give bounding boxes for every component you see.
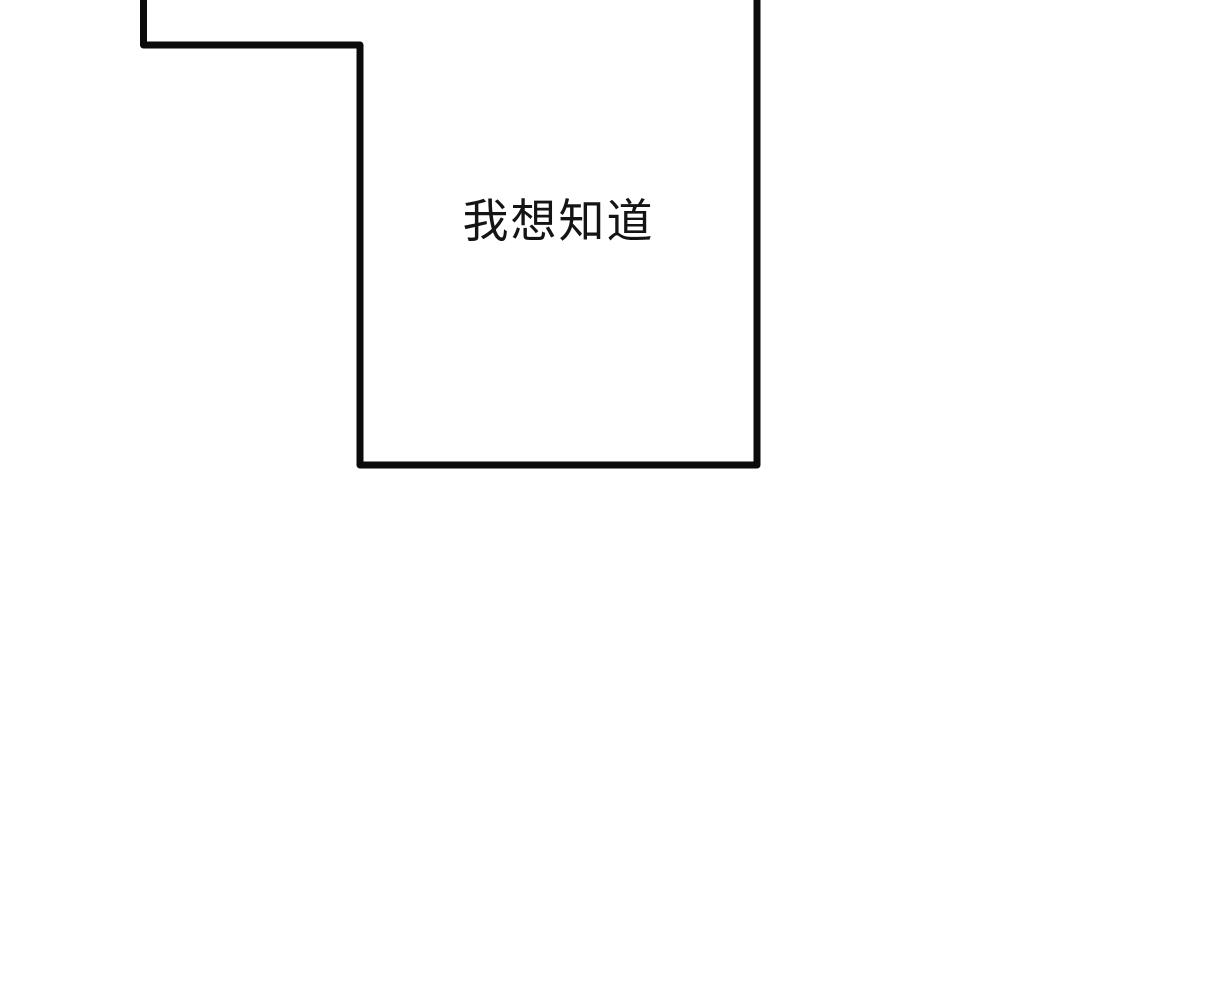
speech-bubble-outline [0, 0, 1220, 989]
speech-text: 我想知道 [360, 196, 757, 247]
comic-page: 我想知道 [0, 0, 1220, 989]
